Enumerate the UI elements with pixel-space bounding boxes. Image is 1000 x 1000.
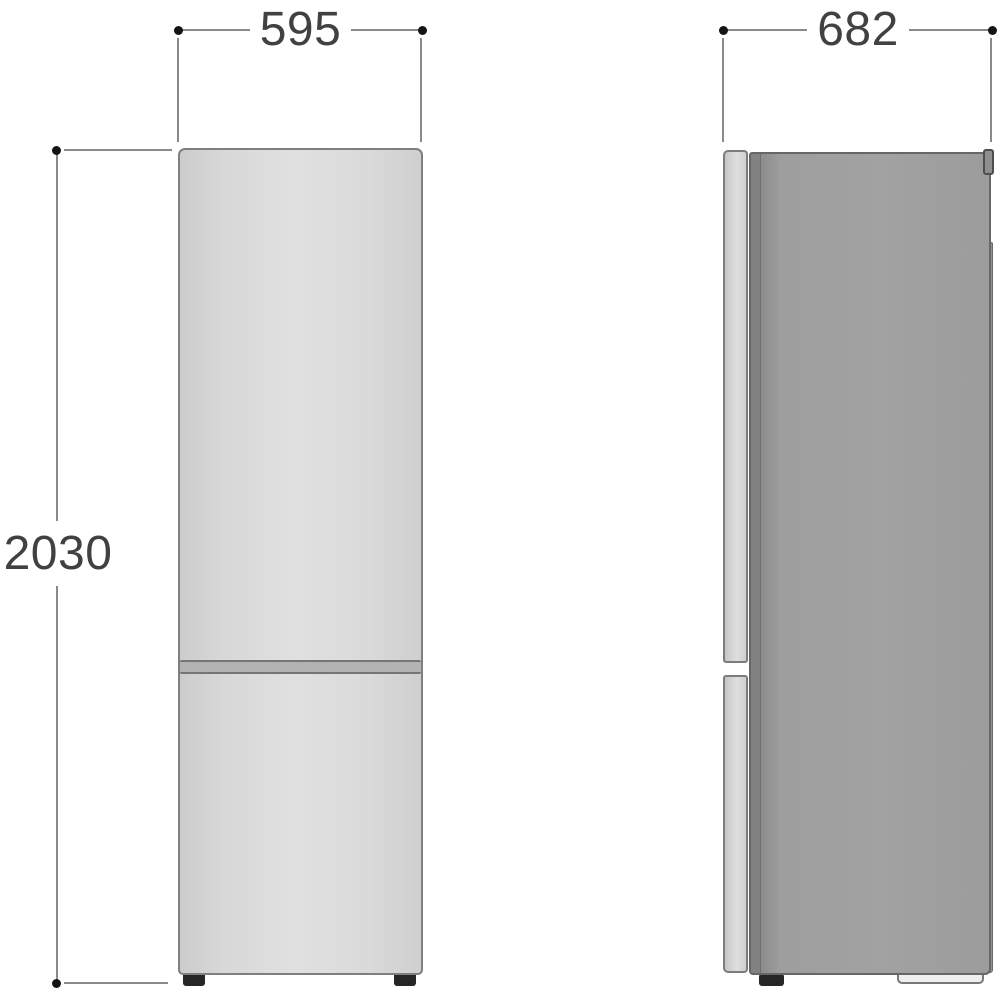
dim-height-dot-top (52, 146, 61, 155)
dim-side-depth-label: 682 (723, 4, 993, 57)
dim-height-label: 2030 (0, 528, 116, 581)
dim-height-ext-bottom (64, 982, 168, 984)
dimension-drawing: 595 682 2030 (0, 0, 1000, 1000)
side-door-lower (723, 675, 748, 973)
side-front-frame (751, 154, 761, 973)
side-hinge-tab (983, 149, 994, 175)
dim-front-width-label: 595 (178, 4, 423, 57)
side-foot (759, 975, 784, 986)
dim-height-ext-top (64, 149, 172, 151)
dim-height-dot-bottom (52, 979, 61, 988)
front-cabinet (178, 148, 423, 975)
side-cabinet (749, 152, 991, 975)
front-door-divider (180, 660, 421, 674)
side-door-upper (723, 150, 748, 663)
